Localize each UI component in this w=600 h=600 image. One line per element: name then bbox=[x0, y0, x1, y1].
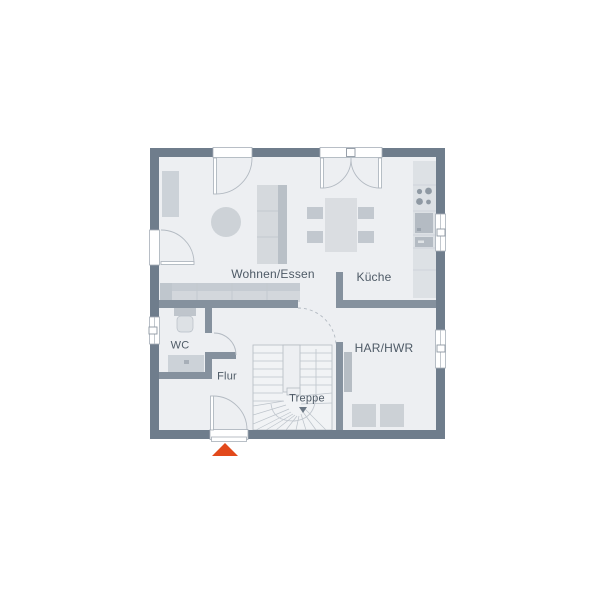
wall-stair-side bbox=[336, 342, 343, 430]
door-leaf bbox=[211, 396, 214, 430]
entrance-threshold bbox=[212, 437, 247, 442]
shelf-unit bbox=[257, 185, 278, 264]
sink-drain bbox=[417, 228, 421, 231]
stair-void bbox=[283, 345, 300, 392]
dining-table bbox=[325, 198, 357, 252]
shelf-unit-side bbox=[278, 185, 287, 264]
chair bbox=[358, 207, 374, 219]
washer-icon bbox=[352, 404, 376, 427]
room-label-flur: Flur bbox=[217, 372, 237, 383]
sofa-back bbox=[160, 283, 300, 291]
door-leaf bbox=[161, 262, 194, 265]
window-marker bbox=[149, 327, 157, 334]
door-leaf bbox=[379, 158, 382, 188]
room-label-har-hwr: HAR/HWR bbox=[355, 342, 414, 354]
wc-sink-tap bbox=[184, 360, 189, 364]
terrace-door-opening bbox=[213, 148, 252, 158]
floor-plan-drawing bbox=[0, 0, 600, 600]
floor-plan: Wohnen/Essen Küche WC Flur Treppe HAR/HW… bbox=[0, 0, 600, 600]
window-marker bbox=[437, 229, 445, 236]
har-shelf bbox=[344, 352, 352, 392]
door-leaf bbox=[214, 158, 217, 194]
room-label-kueche: Küche bbox=[356, 271, 391, 283]
staircase bbox=[253, 345, 332, 430]
room-label-treppe: Treppe bbox=[289, 394, 325, 405]
room-label-wc: WC bbox=[171, 341, 190, 352]
wall-har-top bbox=[336, 300, 436, 308]
wall-wc-corner bbox=[205, 352, 212, 379]
entrance-marker-icon bbox=[212, 443, 238, 456]
kitchen-counter bbox=[413, 161, 436, 298]
window-marker bbox=[437, 345, 445, 352]
sofa-armrest bbox=[160, 283, 172, 302]
wall-wc-right bbox=[205, 308, 212, 333]
chair bbox=[307, 231, 323, 243]
left-door-opening bbox=[150, 230, 160, 265]
chair bbox=[358, 231, 374, 243]
wall-living-hall bbox=[159, 300, 298, 308]
room-label-wohnen-essen: Wohnen/Essen bbox=[231, 268, 315, 280]
wall-wc-bottom bbox=[159, 372, 205, 379]
double-door-center-marker bbox=[347, 149, 356, 157]
oven-handle bbox=[418, 241, 424, 244]
wall-kitchen-stub bbox=[336, 272, 343, 300]
toilet-bowl bbox=[177, 316, 193, 332]
toilet-tank bbox=[174, 308, 196, 316]
sideboard bbox=[162, 171, 179, 217]
dryer-icon bbox=[380, 404, 404, 427]
door-leaf bbox=[321, 158, 324, 188]
round-rug bbox=[211, 207, 241, 237]
chair bbox=[307, 207, 323, 219]
